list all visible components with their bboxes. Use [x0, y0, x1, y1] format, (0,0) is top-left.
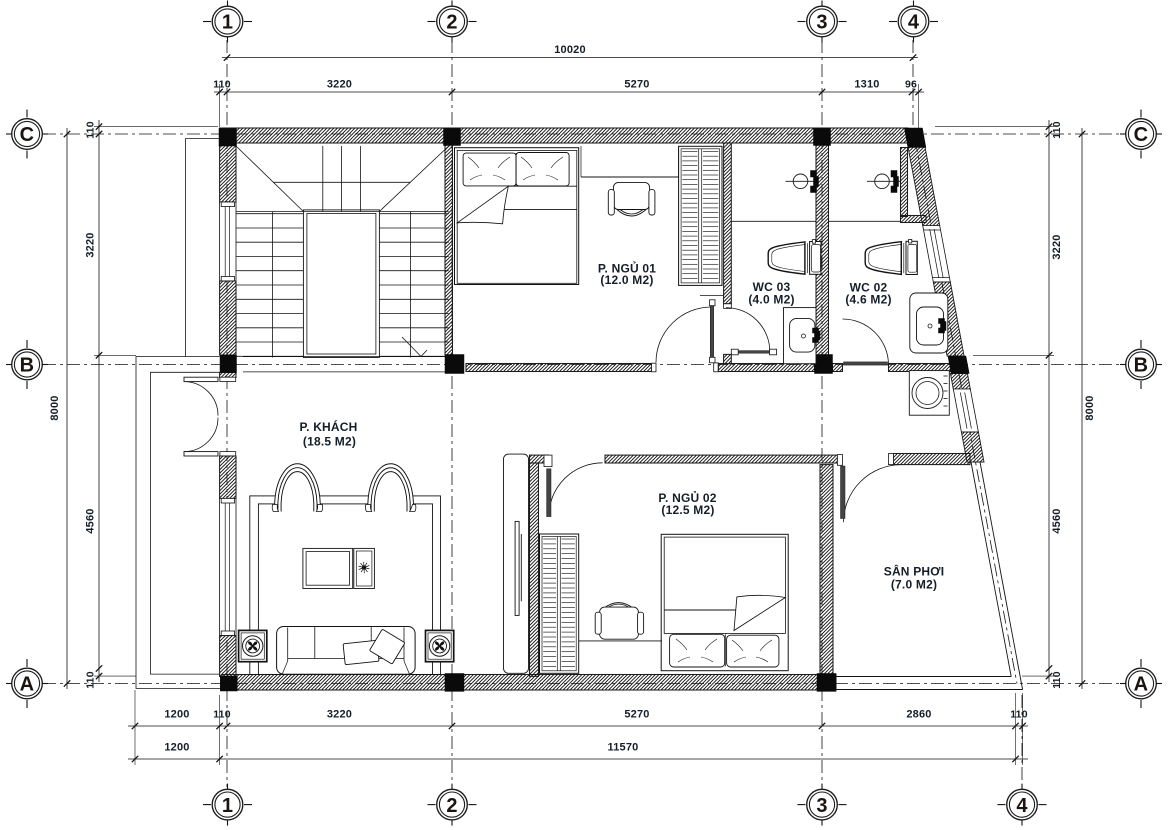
svg-text:4: 4 — [1016, 795, 1028, 817]
svg-text:C: C — [1134, 124, 1149, 146]
svg-text:(18.5 M2): (18.5 M2) — [303, 434, 356, 448]
svg-text:(4.6 M2): (4.6 M2) — [845, 293, 891, 307]
svg-text:5270: 5270 — [624, 709, 649, 721]
svg-text:8000: 8000 — [1084, 395, 1096, 420]
svg-text:96: 96 — [905, 79, 917, 91]
svg-text:110: 110 — [1051, 671, 1063, 689]
svg-text:1310: 1310 — [854, 79, 879, 91]
svg-text:2860: 2860 — [906, 709, 931, 721]
svg-text:110: 110 — [213, 79, 231, 91]
svg-text:5270: 5270 — [624, 79, 649, 91]
svg-text:3220: 3220 — [327, 709, 352, 721]
svg-text:4: 4 — [908, 12, 920, 34]
svg-text:(7.0 M2): (7.0 M2) — [891, 577, 937, 591]
svg-text:10020: 10020 — [554, 44, 586, 56]
svg-text:SÂN PHƠI: SÂN PHƠI — [884, 564, 945, 579]
svg-text:3220: 3220 — [85, 232, 97, 257]
svg-text:2: 2 — [446, 12, 457, 34]
svg-text:8000: 8000 — [49, 395, 61, 420]
svg-text:2: 2 — [446, 795, 457, 817]
svg-text:110: 110 — [1010, 709, 1028, 721]
svg-text:1: 1 — [222, 12, 233, 34]
svg-text:4560: 4560 — [85, 508, 97, 533]
svg-text:1: 1 — [222, 795, 233, 817]
svg-text:110: 110 — [85, 121, 97, 139]
svg-text:A: A — [1134, 674, 1149, 696]
svg-text:110: 110 — [213, 709, 231, 721]
svg-text:(12.5 M2): (12.5 M2) — [661, 503, 714, 517]
svg-text:11570: 11570 — [608, 742, 639, 754]
svg-text:1200: 1200 — [164, 709, 189, 721]
svg-text:3220: 3220 — [327, 79, 352, 91]
svg-text:P. KHÁCH: P. KHÁCH — [299, 419, 357, 434]
svg-text:4560: 4560 — [1051, 508, 1063, 533]
svg-text:110: 110 — [85, 671, 97, 689]
svg-text:3: 3 — [816, 795, 827, 817]
svg-text:B: B — [20, 355, 35, 377]
svg-text:C: C — [20, 124, 35, 146]
svg-text:(12.0 M2): (12.0 M2) — [600, 273, 653, 287]
svg-text:B: B — [1134, 355, 1149, 377]
svg-text:1200: 1200 — [164, 742, 189, 754]
svg-text:110: 110 — [1051, 121, 1063, 139]
svg-text:3: 3 — [816, 12, 827, 34]
svg-text:A: A — [20, 674, 35, 696]
svg-text:(4.0 M2): (4.0 M2) — [748, 292, 794, 306]
svg-text:3220: 3220 — [1051, 234, 1063, 259]
